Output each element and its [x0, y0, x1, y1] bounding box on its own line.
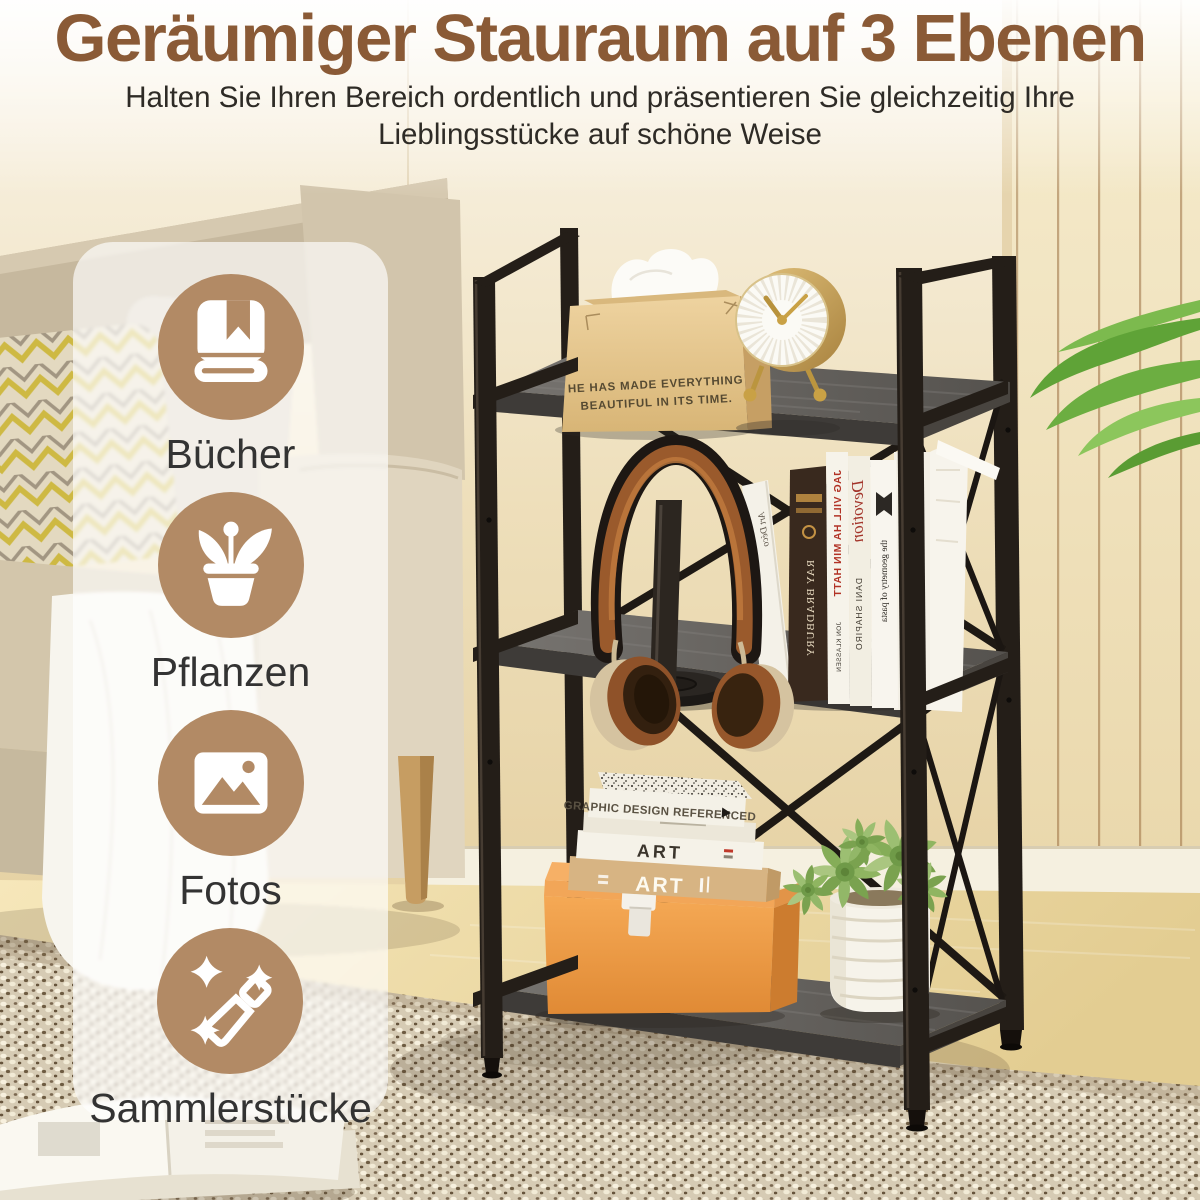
svg-text:ART: ART — [635, 873, 685, 899]
product-banner: HE HAS MADE EVERYTHING BEAUTIFUL IN ITS … — [0, 0, 1200, 1200]
svg-text:the geometry of pasta: the geometry of pasta — [879, 540, 890, 623]
page-title: Geräumiger Stauraum auf 3 Ebenen — [0, 4, 1200, 74]
category-panel: Bücher Pflanzen Fotos — [73, 242, 388, 1120]
svg-text:JON KLASSEN: JON KLASSEN — [836, 622, 843, 672]
svg-text:Devotion: Devotion — [848, 479, 867, 542]
photo-icon-circle — [158, 710, 304, 856]
book-icon — [158, 274, 304, 420]
magic-wand-icon-circle — [157, 928, 303, 1074]
category-label-photos: Fotos — [179, 866, 282, 914]
category-label-collectibles: Sammlerstücke — [89, 1084, 372, 1132]
photo-icon — [158, 710, 304, 856]
category-label-plants: Pflanzen — [151, 648, 311, 696]
plant-icon-circle — [158, 492, 304, 638]
category-label-books: Bücher — [166, 430, 296, 478]
category-books: Bücher — [158, 274, 304, 478]
page-subtitle: Halten Sie Ihren Bereich ordentlich und … — [0, 80, 1200, 153]
header: Geräumiger Stauraum auf 3 Ebenen Halten … — [0, 0, 1200, 154]
svg-text:JAG VILL HA MIN HATT: JAG VILL HA MIN HATT — [832, 470, 844, 597]
potted-plant-icon — [158, 492, 304, 638]
svg-text:ART: ART — [636, 841, 683, 863]
svg-text:RAY BRADBURY: RAY BRADBURY — [805, 560, 817, 657]
svg-text:DANI SHAPIRO: DANI SHAPIRO — [854, 578, 864, 651]
baseboard-top-line — [405, 846, 1200, 849]
subtitle-line-1: Halten Sie Ihren Bereich ordentlich und … — [125, 81, 1074, 114]
category-photos: Fotos — [158, 710, 304, 914]
subtitle-line-2: Lieblingsstücke auf schöne Weise — [378, 118, 822, 151]
category-collectibles: Sammlerstücke — [89, 928, 372, 1132]
book-icon-circle — [158, 274, 304, 420]
magic-wand-icon — [157, 928, 303, 1074]
category-plants: Pflanzen — [151, 492, 311, 696]
